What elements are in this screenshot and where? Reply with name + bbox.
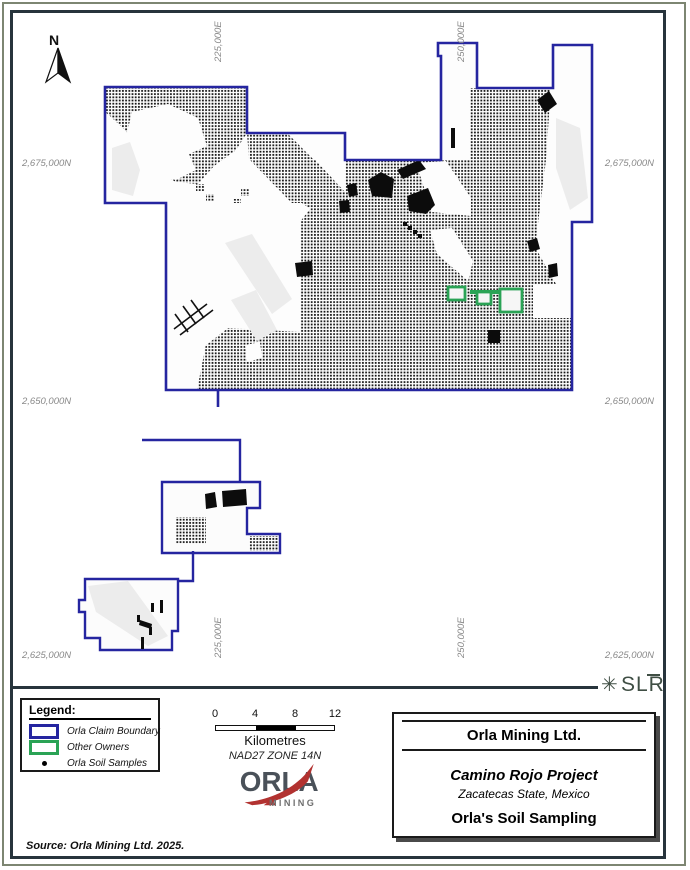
grid-label-bottom-225000e: 225,000E — [213, 617, 224, 659]
grid-label-bottom-250000e: 250,000E — [456, 617, 467, 659]
grid-label-right-2650000n: 2,650,000N — [604, 396, 654, 407]
slr-logo: ✳ SLR — [601, 673, 663, 699]
slr-logo-text: SLR — [621, 673, 665, 697]
scale-tick-4: 4 — [246, 708, 264, 720]
project-location: Zacatecas State, Mexico — [394, 787, 654, 801]
scale-bar — [215, 725, 335, 731]
legend-item-other-owners: Other Owners — [29, 739, 151, 755]
claim-boundary-swatch — [29, 724, 59, 739]
grid-label-left-2675000n: 2,675,000N — [21, 158, 71, 169]
slr-logo-bar — [647, 674, 660, 676]
title-block-rule-mid — [402, 749, 646, 751]
grid-label-top-225000e: 225,000E — [213, 21, 224, 63]
legend-title: Legend: — [29, 703, 151, 720]
north-label: N — [49, 32, 59, 48]
grid-label-left-2625000n: 2,625,000N — [21, 650, 71, 661]
north-arrow: N — [46, 32, 70, 82]
map-sheet: N 225,000E 250,000E 225,000E 250,000E 2,… — [0, 0, 690, 870]
company-name: Orla Mining Ltd. — [394, 722, 654, 749]
scale-tick-12: 12 — [326, 708, 344, 720]
claim-connector-top — [142, 440, 240, 483]
title-block: Orla Mining Ltd. Camino Rojo Project Zac… — [392, 712, 656, 838]
scale-tick-0: 0 — [206, 708, 224, 720]
claim-connector-bottom — [177, 551, 193, 581]
scale-tick-8: 8 — [286, 708, 304, 720]
soil-sample-dot — [42, 761, 47, 766]
grid-label-right-2675000n: 2,675,000N — [604, 158, 654, 169]
grid-label-right-2625000n: 2,625,000N — [604, 650, 654, 661]
legend-label: Orla Soil Samples — [67, 758, 147, 769]
project-name: Camino Rojo Project — [394, 767, 654, 784]
middle-sample-grid — [176, 517, 206, 544]
scale-bar-group: 0 4 8 12 Kilometres NAD27 ZONE 14N — [185, 708, 365, 766]
slr-star-icon: ✳ — [601, 675, 618, 695]
legend-label: Orla Claim Boundary — [67, 726, 160, 737]
soil-sample-dot-wrap — [29, 761, 59, 766]
middle-sample-grid-small — [249, 536, 278, 551]
orla-subtext: MINING — [269, 798, 316, 808]
legend-item-soil-samples: Orla Soil Samples — [29, 755, 151, 771]
footer-separator-line — [10, 686, 598, 689]
grid-label-left-2650000n: 2,650,000N — [21, 396, 71, 407]
map-datum-label: NAD27 ZONE 14N — [185, 750, 365, 762]
soil-sample-grid — [105, 45, 592, 390]
map-title: Orla's Soil Sampling — [394, 810, 654, 827]
legend-box: Legend: Orla Claim Boundary Other Owners… — [20, 698, 160, 772]
scale-unit-label: Kilometres — [185, 733, 365, 748]
map-area: N 225,000E 250,000E 225,000E 250,000E 2,… — [0, 0, 690, 690]
legend-item-claim-boundary: Orla Claim Boundary — [29, 723, 151, 739]
map-svg: N 225,000E 250,000E 225,000E 250,000E 2,… — [0, 0, 690, 690]
other-owners-swatch — [29, 740, 59, 755]
grid-label-top-250000e: 250,000E — [456, 21, 467, 63]
scale-bar-filled-segment — [256, 726, 296, 730]
legend-label: Other Owners — [67, 742, 129, 753]
orla-mining-logo: ORLA MINING — [235, 762, 331, 810]
source-note: Source: Orla Mining Ltd. 2025. — [26, 840, 184, 852]
